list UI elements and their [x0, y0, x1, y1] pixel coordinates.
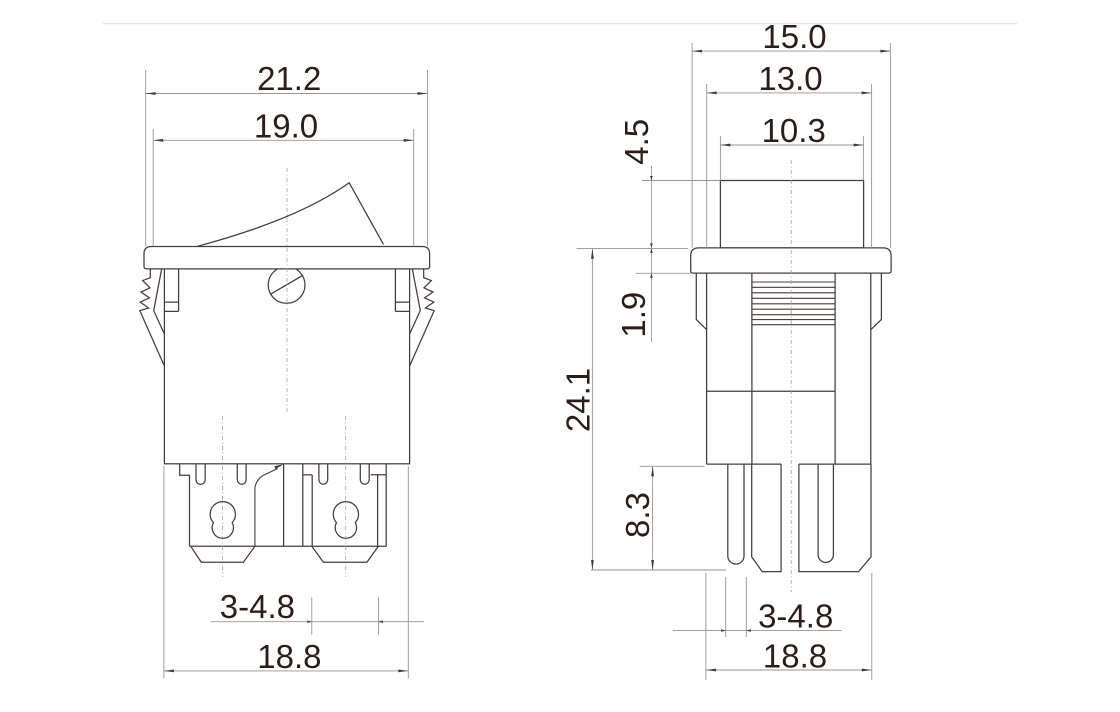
svg-text:4.5: 4.5 [618, 119, 655, 165]
svg-text:3-4.8: 3-4.8 [758, 598, 833, 635]
svg-text:21.2: 21.2 [257, 60, 321, 97]
svg-text:18.8: 18.8 [257, 638, 321, 675]
svg-text:18.8: 18.8 [763, 638, 827, 675]
svg-text:10.3: 10.3 [762, 112, 826, 149]
svg-text:15.0: 15.0 [762, 18, 826, 55]
svg-text:1.9: 1.9 [615, 292, 652, 338]
svg-text:13.0: 13.0 [758, 60, 822, 97]
svg-text:3-4.8: 3-4.8 [220, 588, 295, 625]
svg-text:8.3: 8.3 [619, 492, 656, 538]
svg-text:19.0: 19.0 [254, 107, 318, 144]
svg-text:24.1: 24.1 [560, 368, 597, 432]
